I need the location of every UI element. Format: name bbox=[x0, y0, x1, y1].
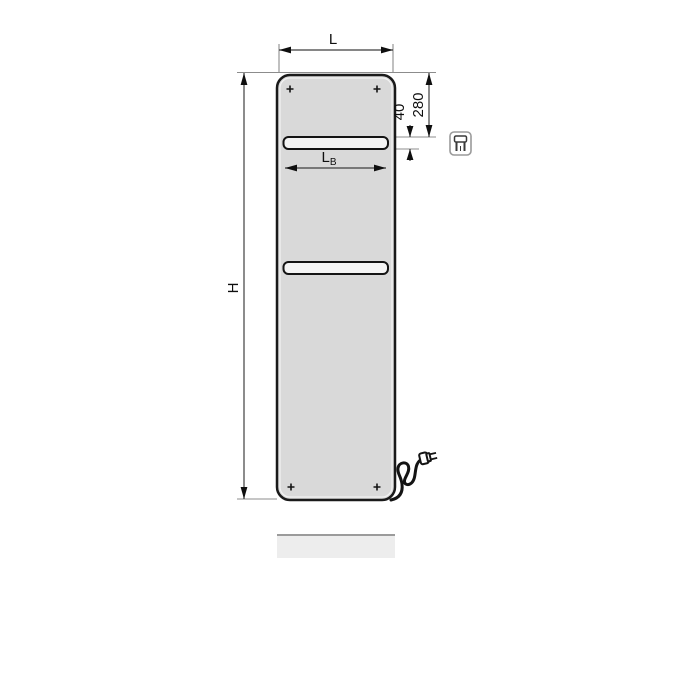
dimension-label-rail-width-main: L bbox=[321, 149, 329, 166]
dimension-overall-width: L bbox=[279, 31, 393, 53]
diagram-canvas: L H 280 40 LB bbox=[0, 0, 700, 700]
arrowhead-280-bottom bbox=[426, 125, 433, 137]
power-plug-prong-top bbox=[429, 453, 436, 455]
dimension-label-rail-width-sub: B bbox=[330, 157, 337, 168]
arrowhead-280-top bbox=[426, 73, 433, 85]
floor-shadow bbox=[277, 534, 395, 558]
towel-rail-upper bbox=[284, 137, 389, 149]
dimension-label-width: L bbox=[329, 31, 337, 48]
electric-plug-icon-socket bbox=[455, 136, 467, 142]
arrowhead-40-down bbox=[407, 126, 414, 137]
power-plug-prong-bottom bbox=[431, 458, 438, 460]
power-cord bbox=[391, 450, 438, 500]
dimension-label-40: 40 bbox=[391, 104, 408, 121]
arrowhead-width-left bbox=[279, 47, 291, 54]
towel-rail-lower bbox=[284, 262, 389, 274]
arrowhead-height-top bbox=[241, 73, 248, 85]
power-plug bbox=[419, 450, 438, 465]
arrowhead-height-bottom bbox=[241, 487, 248, 499]
radiator-dimension-drawing: L H 280 40 LB bbox=[0, 0, 700, 700]
radiator-panel bbox=[277, 75, 395, 500]
arrowhead-width-right bbox=[381, 47, 393, 54]
arrowhead-40-up bbox=[407, 149, 414, 160]
floor-shadow-bar bbox=[277, 534, 395, 558]
dimension-label-height: H bbox=[225, 283, 242, 294]
electric-plug-icon bbox=[450, 132, 471, 155]
dimension-top-to-rail: 280 bbox=[410, 73, 432, 137]
dimension-overall-height: H bbox=[225, 73, 247, 499]
dimension-label-280: 280 bbox=[410, 92, 427, 117]
